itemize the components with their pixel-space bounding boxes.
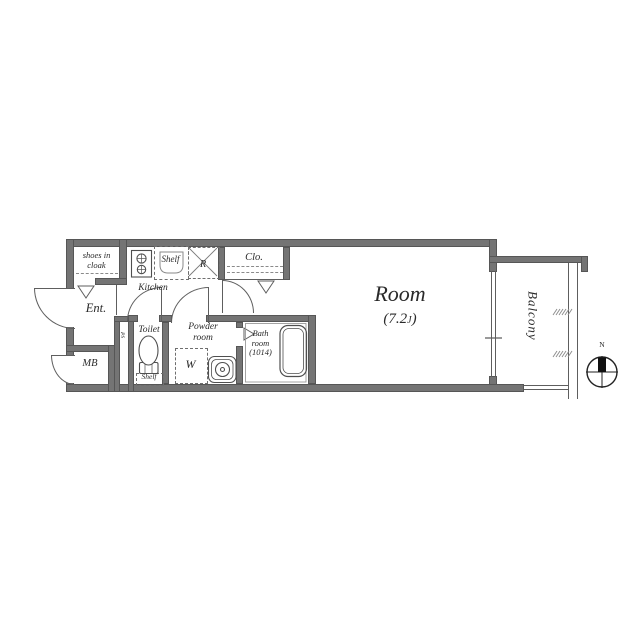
closet-front-line [225,279,283,280]
toilet-shelf-label: Shelf [136,373,162,381]
entrance-label: Ent. [76,301,116,315]
bath-room-label: Bath room (1014) [242,329,279,358]
refrigerator-label: R [188,259,218,270]
floor-plan: shoes in cloak Shelf R Clo. Kitchen Ent.… [0,0,640,640]
entrance-step-line [116,285,117,315]
room-label: Room [330,282,470,307]
room-door-swing [222,280,254,313]
closet-label: Clo. [225,252,283,264]
shoes-cloak-door-marker [78,286,94,298]
pipe-space-label: PS [119,325,125,345]
wall-bath-right [308,315,316,384]
wall-balcony-end [581,256,588,272]
kitchen-label: Kitchen [128,283,178,294]
meter-box-label: MB [72,358,108,370]
wall-top [66,239,497,247]
entrance-door-swing [34,288,75,329]
wall-right-lower [489,376,497,385]
closet-hanger-line-1 [227,266,283,267]
room-area-label: (7.2J) [330,311,470,328]
toilet-icon [139,336,158,374]
bathtub-icon [280,326,307,377]
balcony-bottom-line-2 [524,389,570,390]
wall-bottom [66,384,524,392]
stove-icon [132,251,152,278]
shoes-shelf-line [76,273,118,274]
closet-door-marker [258,281,274,293]
compass-icon [586,356,618,388]
wall-shoes-bottom [95,278,127,285]
kitchen-shelf-label: Shelf [154,254,187,264]
window-line-inner [495,271,496,377]
compass-north-label: N [596,341,608,349]
washer-label: W [175,358,206,371]
balcony-bottom-line-1 [524,385,570,386]
toilet-label: Toilet [134,325,164,336]
window-line-outer [491,271,492,377]
fixtures-overlay [0,0,640,640]
balcony-label: Balcony [523,256,541,376]
balcony-railing [568,263,578,399]
wall-closet-right [283,247,290,280]
wall-waterblock-top-3 [206,315,316,322]
powder-room-label: Powder room [168,322,238,343]
closet-hanger-line-2 [227,272,283,273]
shoes-cloak-label: shoes in cloak [74,251,119,270]
wash-basin-icon [209,357,237,383]
